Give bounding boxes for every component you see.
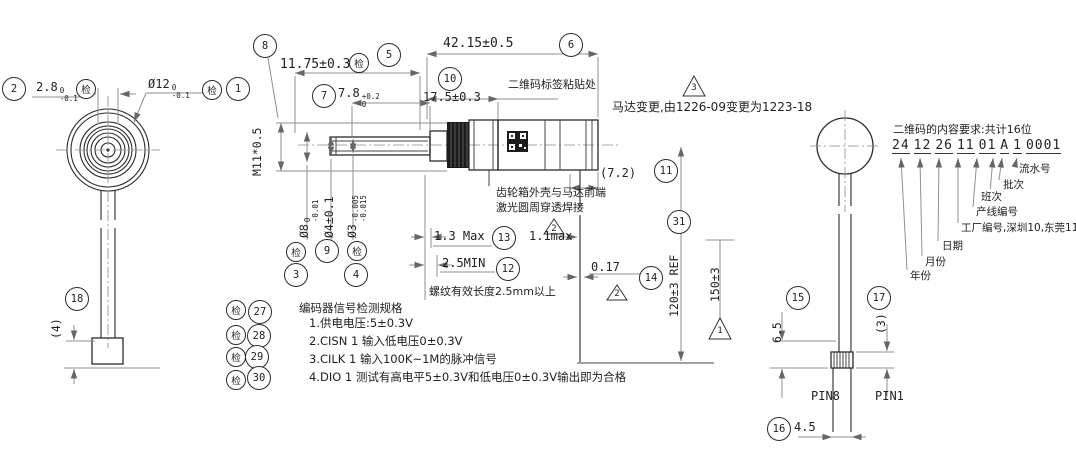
qr-label-line-no: 产线编号 (976, 204, 1018, 219)
dim-11-75: 11.75±0.3 (280, 57, 350, 72)
dim-17-5: 17.5±0.3 (423, 90, 481, 104)
dim-4-ref: (4) (49, 318, 63, 339)
balloon-15: 15 (786, 286, 810, 310)
dim-4-5: 4.5 (794, 420, 816, 434)
thread-length-note: 螺纹有效长度2.5mm以上 (429, 283, 556, 299)
dim-42-15: 42.15±0.5 (443, 36, 513, 51)
qr-code-mark (507, 131, 528, 152)
inspect-balloon-11-75: 检 (349, 53, 369, 73)
qr-spec-code: 2412261101A10001 (892, 138, 1065, 153)
qr-label-day: 日期 (942, 238, 963, 253)
balloon-17: 17 (867, 286, 891, 310)
balloon-6: 6 (559, 33, 583, 57)
dim-150: 150±3 (708, 267, 722, 302)
pin8-label: PIN8 (811, 389, 840, 403)
dim-3-ref: (3) (874, 313, 888, 334)
engineering-drawing-canvas: 2 检 检 1 8 检 5 7 10 6 检 3 9 检 4 13 12 14 … (0, 0, 1076, 450)
qr-label-shift: 班次 (981, 189, 1002, 204)
qr-label-serial: 流水号 (1019, 161, 1051, 176)
pin1-label: PIN1 (875, 389, 904, 403)
encoder-spec-line4: 4.DIO 1 测试有高电平5±0.3V和低电压0±0.3V输出即为合格 (309, 369, 626, 385)
balloon-9: 9 (315, 239, 339, 263)
qr-label-batch: 批次 (1003, 177, 1024, 192)
dim-6-5: 6.5 (770, 322, 784, 343)
balloon-2: 2 (2, 77, 26, 101)
qr-code-group: 01 (979, 138, 997, 154)
qr-code-group: 1 (1013, 138, 1022, 154)
qr-label-factory: 工厂编号,深圳10,东莞11 (961, 220, 1076, 235)
balloon-5: 5 (377, 43, 401, 67)
encoder-spec-line1: 1.供电电压:5±0.3V (309, 315, 413, 331)
balloon-18: 18 (65, 287, 89, 311)
revision-flag-2a: 2 (551, 224, 556, 234)
qr-spec-title: 二维码的内容要求:共计16位 (893, 121, 1032, 137)
revision-flag-1: 1 (717, 326, 722, 336)
inspect-balloon-enc1: 检 (226, 300, 246, 320)
dim-120-ref: 120±3 REF (667, 255, 681, 317)
qr-code-group: 12 (914, 138, 932, 154)
balloon-16: 16 (767, 417, 791, 441)
dim-2-8: 2.80-0.1 (36, 80, 78, 103)
balloon-13: 13 (492, 226, 516, 250)
revision-flag-3: 3 (691, 83, 696, 93)
balloon-3: 3 (284, 263, 308, 287)
dim-d8: Ø80-0.01 (297, 200, 320, 238)
dim-2-5-min: 2.5MIN (442, 256, 485, 270)
inspect-balloon-d3: 检 (347, 241, 367, 261)
balloon-31: 31 (667, 210, 691, 234)
right-view (770, 110, 894, 437)
qr-code-group: 11 (957, 138, 975, 154)
balloon-14: 14 (639, 266, 663, 290)
front-view (32, 88, 206, 384)
qr-label-year: 年份 (910, 268, 931, 283)
inspect-balloon-2-8: 检 (76, 79, 96, 99)
dim-7-2: (7.2) (600, 166, 636, 180)
qr-label-month: 月份 (925, 254, 946, 269)
weld-note-line2: 激光圆周穿透焊接 (496, 199, 584, 215)
dim-d12: Ø120-0.1 (148, 77, 190, 100)
qr-paste-note: 二维码标签粘贴处 (508, 76, 596, 92)
inspect-balloon-enc3: 检 (226, 347, 246, 367)
dim-7-8: 7.8+0.20 (338, 86, 380, 109)
balloon-27: 27 (248, 300, 272, 324)
inspect-balloon-d12: 检 (202, 80, 222, 100)
dim-1-3-max: 1.3 Max (434, 229, 485, 243)
motor-change-note: 马达变更,由1226-09变更为1223-18 (612, 98, 812, 115)
qr-code-group: 0001 (1026, 138, 1061, 154)
balloon-7: 7 (312, 84, 336, 108)
encoder-spec-line3: 3.CILK 1 输入100K~1M的脉冲信号 (309, 351, 497, 367)
encoder-spec-title: 编码器信号检测规格 (299, 300, 403, 316)
balloon-1: 1 (226, 77, 250, 101)
qr-code-group: A (1000, 138, 1009, 154)
dim-0-17: 0.17 (591, 260, 620, 274)
dim-m11: M11*0.5 (250, 128, 264, 176)
inspect-balloon-enc4: 检 (226, 370, 246, 390)
weld-note-line1: 齿轮箱外壳与马达前端 (496, 184, 606, 200)
inspect-balloon-d8: 检 (286, 242, 306, 262)
dim-d4: Ø4±0.1 (322, 196, 336, 238)
balloon-30: 30 (247, 366, 271, 390)
balloon-12: 12 (496, 257, 520, 281)
balloon-10: 10 (438, 67, 462, 91)
encoder-spec-line2: 2.CISN 1 输入低电压0±0.3V (309, 333, 463, 349)
balloon-8: 8 (253, 34, 277, 58)
qr-code-group: 26 (935, 138, 953, 154)
inspect-balloon-enc2: 检 (226, 325, 246, 345)
qr-code-group: 24 (892, 138, 910, 154)
balloon-4: 4 (344, 263, 368, 287)
balloon-11: 11 (654, 159, 678, 183)
dim-d3: Ø3-0.005-0.015 (345, 195, 368, 238)
revision-flag-2b: 2 (614, 289, 619, 299)
